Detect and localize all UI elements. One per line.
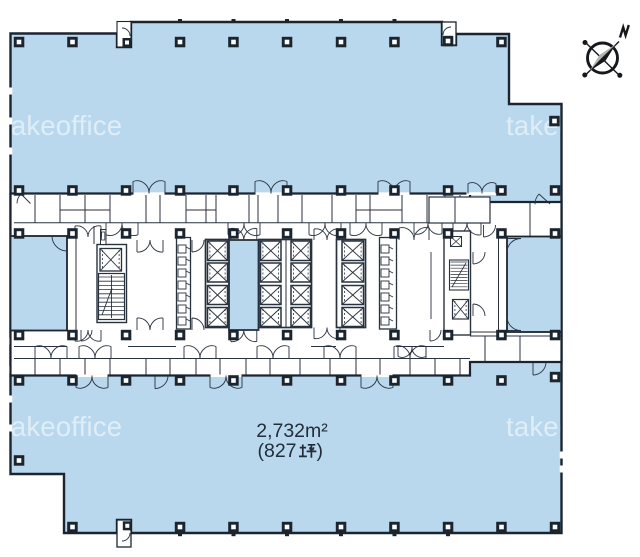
svg-text:2,732m²: 2,732m²: [256, 420, 328, 442]
svg-text:takeoffice: takeoffice: [506, 110, 625, 141]
svg-text:(827: (827: [258, 440, 297, 462]
svg-text:takeoffice: takeoffice: [506, 411, 625, 442]
svg-text:takeoffice: takeoffice: [3, 411, 122, 442]
svg-text:takeoffice: takeoffice: [3, 110, 122, 141]
svg-text:): ): [317, 440, 324, 462]
